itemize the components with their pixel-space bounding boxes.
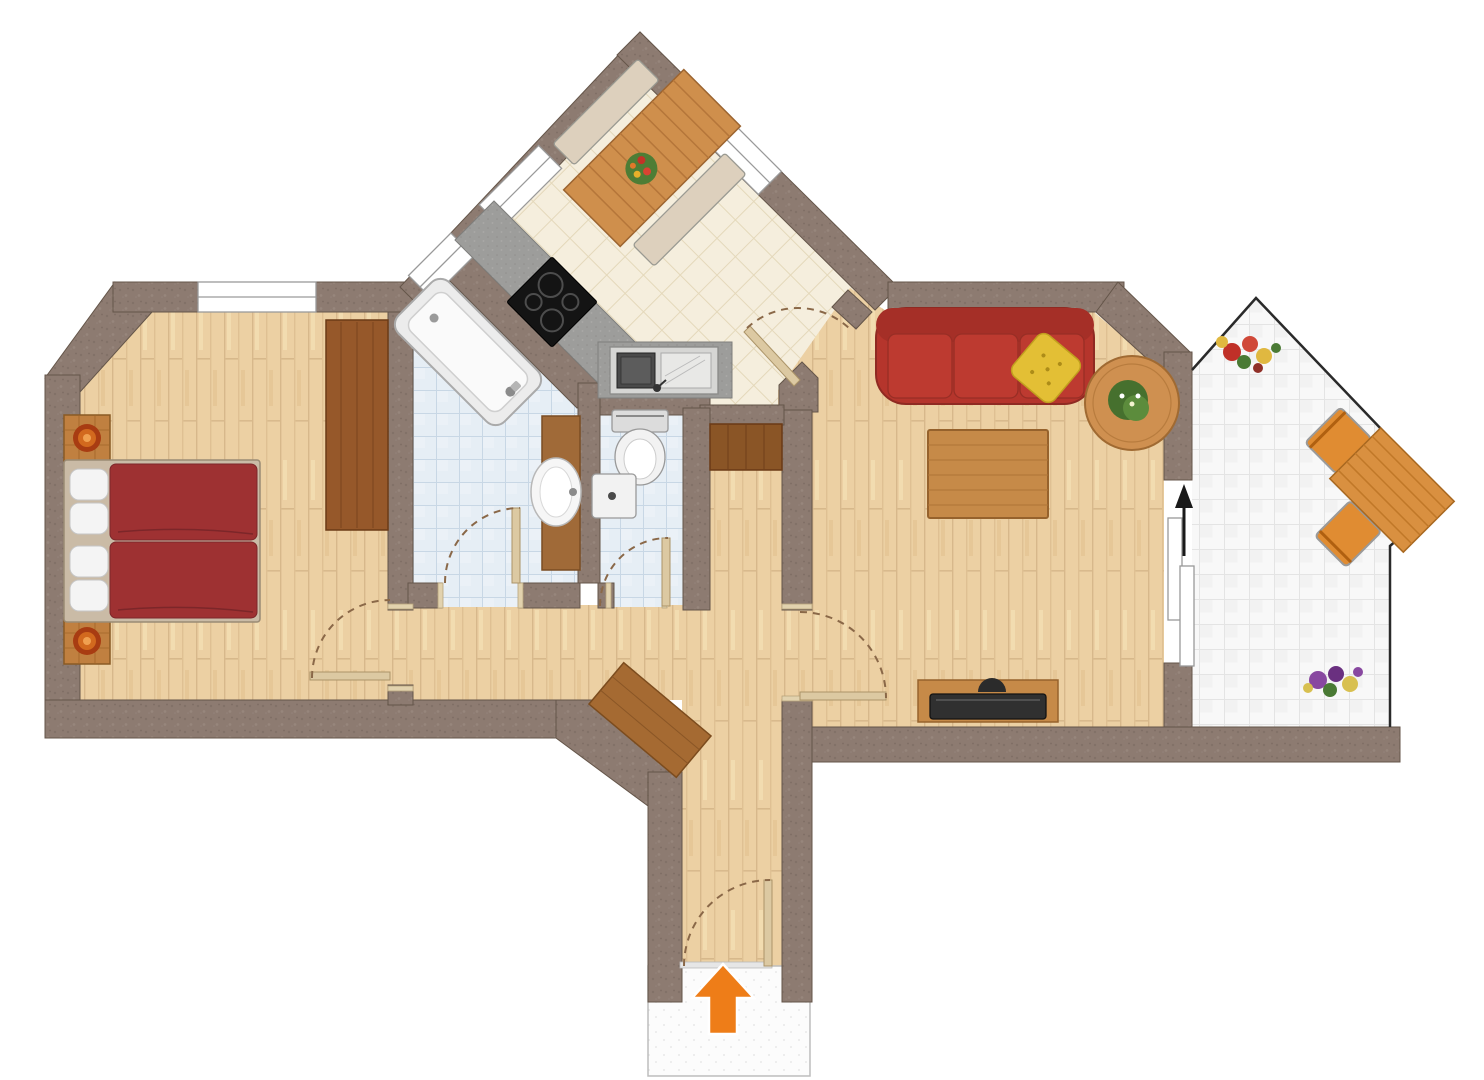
entrance-door-leaf [764, 880, 772, 966]
wall-hall-living [782, 410, 812, 610]
side-table-with-plant: side-table-with-plant [1085, 356, 1179, 450]
bedroom-door-leaf [310, 672, 390, 680]
wall-bedroom-top-right [316, 282, 413, 312]
nightstand-top: nightstand-with-plant [64, 415, 110, 461]
floor-plan-page: Bedroom Bathroom WC Kitchen / Dining Liv… [0, 0, 1484, 1080]
wall-bottom-band [810, 727, 1400, 762]
flat-tv: flat-tv [930, 694, 1046, 719]
coffee-table: coffee-table [928, 430, 1048, 518]
wall-niche-top [700, 405, 784, 425]
bedroom-window [198, 282, 316, 312]
wall-bedroom-right [388, 312, 413, 610]
wall-corridor-right [782, 700, 812, 1002]
wardrobe: wardrobe [326, 320, 388, 530]
double-bed: double-bed [64, 460, 260, 622]
corner-washbasin: corner-washbasin [592, 474, 636, 518]
nightstand-bottom: nightstand-with-plant [64, 618, 110, 664]
tv-lowboard: tv-lowboard flat-tv [918, 678, 1058, 722]
room-floors: Bedroom Bathroom WC Kitchen / Dining Liv… [80, 75, 1446, 1076]
built-in-cabinet: built-in-cabinet [710, 424, 782, 470]
floor-plan-canvas: Bedroom Bathroom WC Kitchen / Dining Liv… [0, 0, 1484, 1080]
wall-bedroom-bottom [45, 700, 592, 738]
bathroom-door-leaf [512, 508, 520, 583]
steel-sink-unit: steel-sink-unit [610, 347, 718, 394]
wall-bedroom-top-left [113, 282, 200, 312]
wc-door-leaf [662, 538, 670, 606]
living-door-leaf [800, 692, 886, 700]
wall-wc-right [683, 408, 710, 610]
wall-corridor-left [648, 772, 682, 1002]
wall-bath-bottom-right [520, 583, 580, 608]
balcony-sliding-door [1168, 518, 1194, 666]
